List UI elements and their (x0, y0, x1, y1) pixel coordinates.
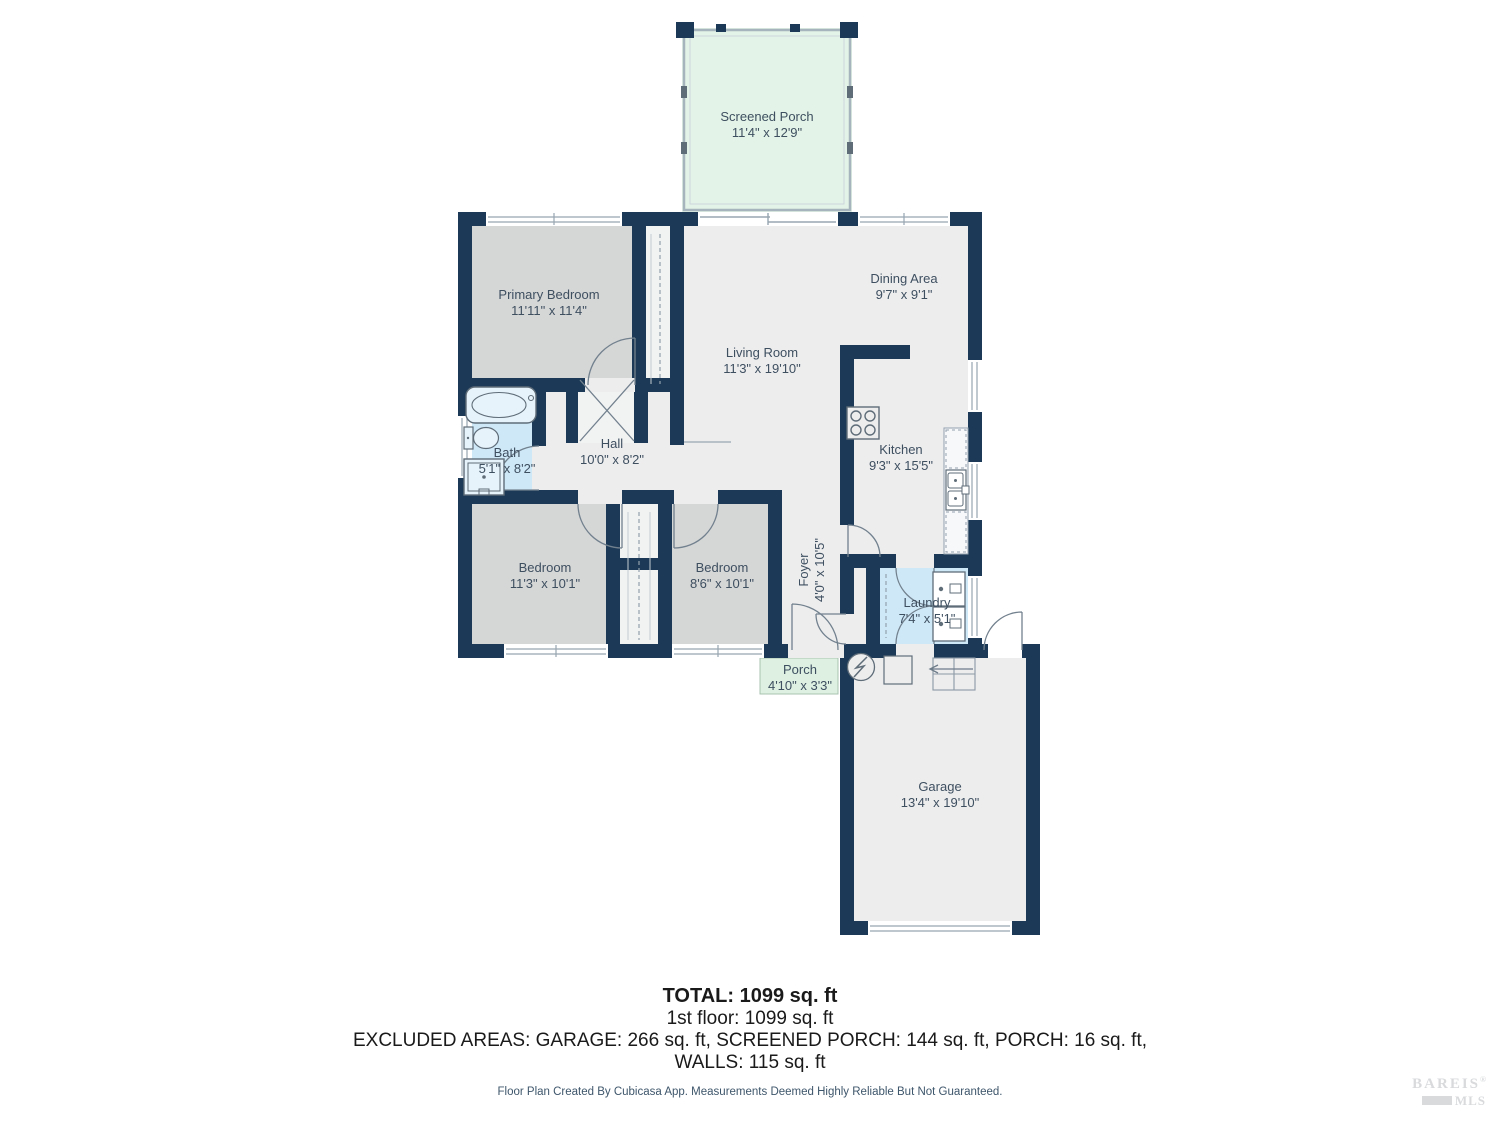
registered-mark: ® (1480, 1075, 1486, 1084)
garage-door (868, 921, 1012, 935)
window (504, 644, 608, 658)
window (486, 212, 622, 226)
room-label-hall: Hall10'0" x 8'2" (580, 436, 644, 468)
room-label-kitchen: Kitchen9'3" x 15'5" (869, 442, 933, 474)
room-label-living-room: Living Room11'3" x 19'10" (723, 345, 801, 377)
room-label-laundry: Laundry7'4" x 5'1" (899, 595, 956, 627)
stove-icon (847, 407, 879, 439)
window (968, 576, 982, 638)
steps-icon (930, 658, 975, 690)
window (968, 462, 982, 520)
window (968, 360, 982, 412)
room-label-primary-bedroom: Primary Bedroom11'11" x 11'4" (498, 287, 599, 319)
excluded-areas: EXCLUDED AREAS: GARAGE: 266 sq. ft, SCRE… (0, 1030, 1500, 1052)
walls-area: WALLS: 115 sq. ft (0, 1052, 1500, 1074)
bathtub-icon (466, 387, 536, 423)
window (672, 644, 764, 658)
room-label-foyer: Foyer4'0" x 10'5" (796, 538, 828, 602)
room-label-dining-area: Dining Area9'7" x 9'1" (870, 271, 937, 303)
kitchen-counter-icon (944, 428, 969, 554)
window (858, 212, 950, 226)
logo-bar (1422, 1096, 1452, 1105)
first-floor-area: 1st floor: 1099 sq. ft (0, 1008, 1500, 1030)
sink-icon (946, 470, 969, 510)
logo-suffix: MLS (1455, 1093, 1486, 1108)
room-label-porch: Porch4'10" x 3'3" (768, 662, 832, 694)
floor-plan-page: Screened Porch11'4" x 12'9" Primary Bedr… (0, 0, 1500, 1125)
primary-closet-floor (646, 226, 670, 392)
total-area: TOTAL: 1099 sq. ft (0, 984, 1500, 1008)
sliding-door (698, 212, 838, 226)
room-label-garage: Garage13'4" x 19'10" (901, 779, 980, 811)
bareis-mls-logo: BAREIS® MLS (1412, 1072, 1486, 1108)
area-summary: TOTAL: 1099 sq. ft 1st floor: 1099 sq. f… (0, 984, 1500, 1074)
electrical-panel-icon (848, 654, 875, 681)
disclaimer-text: Floor Plan Created By Cubicasa App. Meas… (0, 1086, 1500, 1098)
bedroom-closet-floor (620, 504, 658, 644)
water-heater-icon (884, 656, 912, 684)
room-label-bedroom-1: Bedroom11'3" x 10'1" (510, 560, 580, 592)
room-label-bedroom-2: Bedroom8'6" x 10'1" (690, 560, 754, 592)
room-label-screened-porch: Screened Porch11'4" x 12'9" (720, 109, 813, 141)
logo-name: BAREIS (1412, 1076, 1480, 1092)
room-label-bath: Bath5'1" x 8'2" (479, 445, 536, 477)
